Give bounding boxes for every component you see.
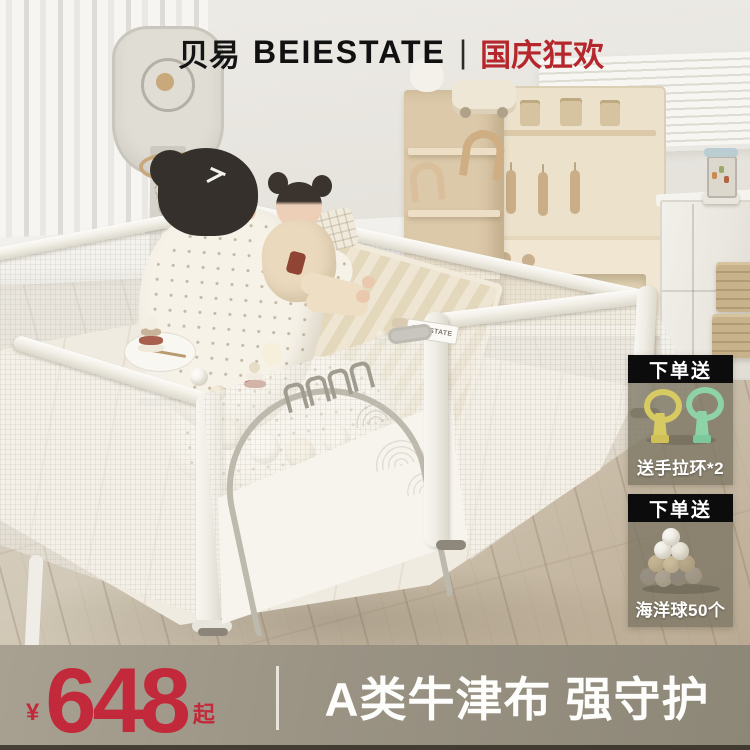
promo-badge-ocean-balls: 下单送 海洋球50个 xyxy=(628,494,733,627)
ocean-ball xyxy=(662,528,680,546)
mother-hair xyxy=(158,148,258,236)
play-kitchen-shelf xyxy=(492,130,656,136)
playpen-front-corner-post xyxy=(424,312,448,547)
wicker-basket xyxy=(712,314,750,358)
kitchen-jar xyxy=(560,98,582,126)
toy-bus xyxy=(452,80,516,114)
stacker-ring xyxy=(139,336,163,345)
promo-badge-body: 送手拉环*2 xyxy=(628,383,733,485)
brand-name-english: BEIESTATE xyxy=(253,34,446,71)
price-suffix: 起 xyxy=(193,697,215,729)
promo-badge-body: 海洋球50个 xyxy=(628,522,733,627)
brand-name-chinese: 贝易 xyxy=(178,30,240,75)
wicker-basket xyxy=(716,262,750,312)
promo-badge-pull-rings: 下单送 送手拉环*2 xyxy=(628,355,733,485)
pull-ring-yellow-clip xyxy=(651,435,669,443)
stacker-top xyxy=(249,362,260,373)
post-foot-pad xyxy=(436,540,466,550)
toy-blender-jar xyxy=(707,156,737,198)
kitchen-utensil xyxy=(570,170,580,214)
toy-blender-lid xyxy=(704,148,738,157)
stacker-top xyxy=(144,316,158,330)
kitchen-jar xyxy=(600,100,620,126)
kitchen-utensil xyxy=(538,172,548,216)
promo-badge-caption: 海洋球50个 xyxy=(628,596,733,621)
price: ¥ 648 起 xyxy=(26,645,215,745)
header-divider: | xyxy=(459,34,467,71)
promo-badge-header: 下单送 xyxy=(628,494,733,522)
currency-symbol: ¥ xyxy=(26,699,39,727)
stacker-base xyxy=(138,344,164,352)
baby-foot xyxy=(356,290,370,303)
brand-header: 贝易 BEIESTATE | 国庆狂欢 xyxy=(178,30,604,75)
baby-foot xyxy=(362,276,375,288)
promo-badge-caption: 送手拉环*2 xyxy=(628,454,733,479)
price-bar-divider xyxy=(276,666,279,730)
product-card: BEIESTATE 贝易 BEIESTATE | 国庆狂欢 下单送 送手拉环*2… xyxy=(0,0,750,750)
ball xyxy=(190,368,208,386)
hoop-emblem-ball xyxy=(156,73,174,91)
pull-ring-green-clip xyxy=(693,435,711,443)
kitchen-utensil xyxy=(506,170,516,214)
product-tagline: A类牛津布 强守护 xyxy=(292,645,742,745)
campaign-label: 国庆狂欢 xyxy=(480,30,604,75)
kitchen-jar xyxy=(520,100,540,126)
cabinet-seam xyxy=(692,204,694,372)
post-foot-pad xyxy=(198,628,228,636)
price-amount: 648 xyxy=(45,664,187,739)
promo-badge-header: 下单送 xyxy=(628,355,733,383)
price-bar: ¥ 648 起 A类牛津布 强守护 xyxy=(0,645,750,750)
